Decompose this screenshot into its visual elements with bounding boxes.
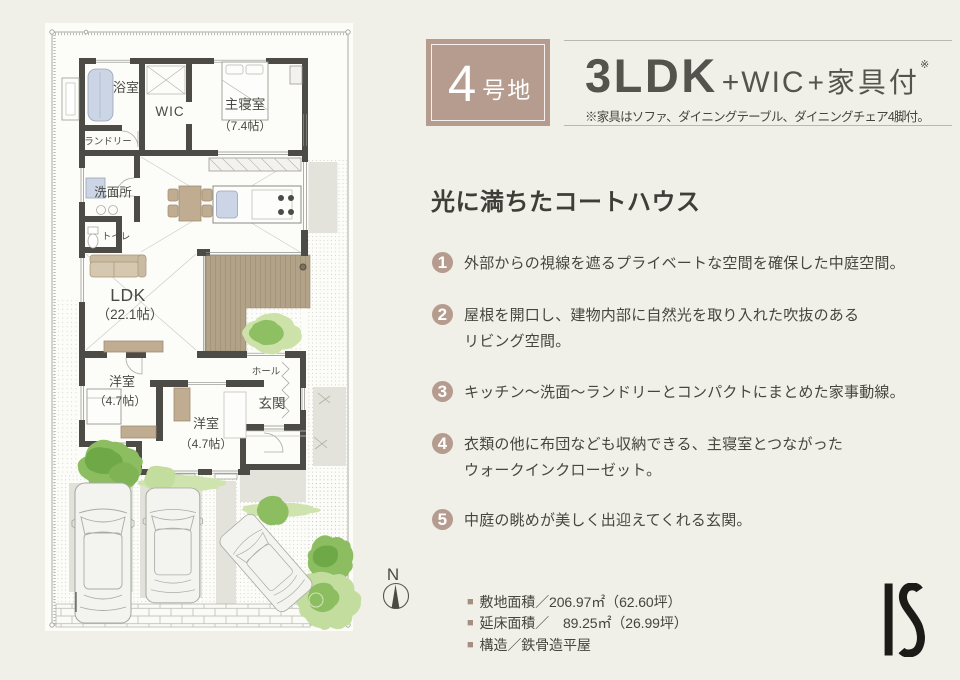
svg-text:（22.1帖）: （22.1帖） [97,307,164,322]
svg-text:ランドリー: ランドリー [84,137,132,148]
svg-text:N: N [387,565,399,584]
svg-text:LDK: LDK [110,285,146,305]
svg-text:洗面所: 洗面所 [94,186,132,200]
svg-text:（4.7帖）: （4.7帖） [180,436,233,451]
svg-text:（4.7帖）: （4.7帖） [94,393,147,408]
svg-text:トイレ: トイレ [102,232,131,243]
svg-text:浴室: 浴室 [113,80,139,95]
svg-text:洋室: 洋室 [193,416,219,431]
svg-text:ホール: ホール [252,367,281,378]
svg-text:玄関: 玄関 [259,396,286,411]
svg-text:（7.4帖）: （7.4帖） [219,118,272,133]
svg-text:主寝室: 主寝室 [225,97,266,112]
svg-text:洋室: 洋室 [109,374,135,389]
svg-text:WIC: WIC [155,104,184,119]
